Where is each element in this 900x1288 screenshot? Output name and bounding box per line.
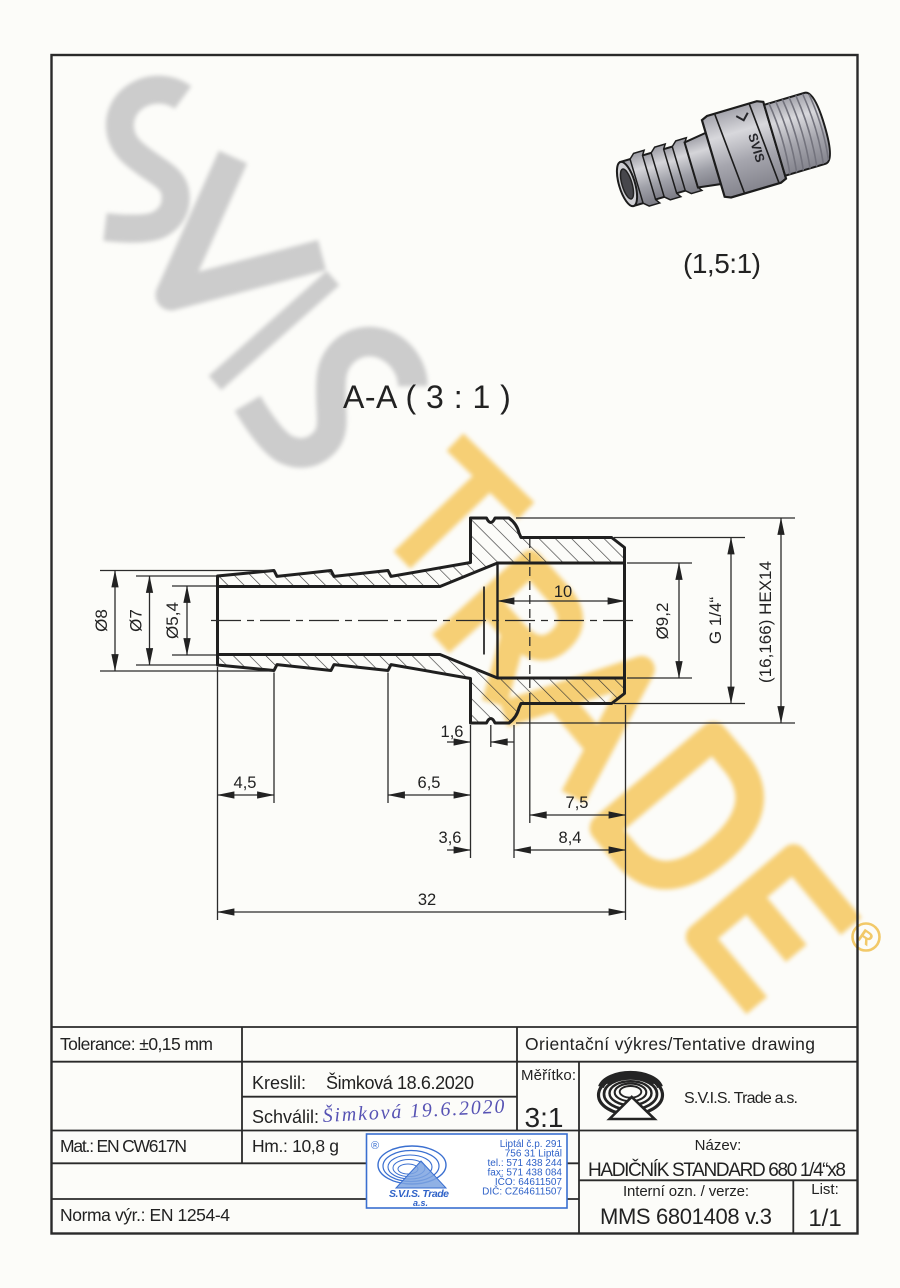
svg-text:7,5: 7,5 — [566, 794, 589, 812]
svg-text:G 1/4“: G 1/4“ — [706, 597, 725, 645]
svg-text:Tolerance: ±0,15 mm: Tolerance: ±0,15 mm — [60, 1034, 213, 1054]
svg-text:DIČ: CZ64611507: DIČ: CZ64611507 — [482, 1185, 562, 1198]
svg-text:Ø8: Ø8 — [92, 609, 111, 632]
svg-text:Ø7: Ø7 — [127, 609, 146, 632]
svg-text:Měřítko:: Měřítko: — [521, 1067, 576, 1084]
svg-text:Šimková 19.6.2020: Šimková 19.6.2020 — [322, 1094, 505, 1127]
svg-text:3:1: 3:1 — [525, 1102, 564, 1133]
svg-text:Interní ozn. / verze:: Interní ozn. / verze: — [623, 1183, 749, 1200]
svg-text:6,5: 6,5 — [418, 774, 441, 792]
svg-text:MMS 6801408 v.3: MMS 6801408 v.3 — [600, 1204, 772, 1229]
svg-text:Ø9,2: Ø9,2 — [653, 603, 672, 640]
svg-text:Hm.: 10,8 g: Hm.: 10,8 g — [252, 1136, 339, 1156]
svg-text:Mat.: EN CW617N: Mat.: EN CW617N — [60, 1136, 187, 1156]
svg-text:Šimková 18.6.2020: Šimková 18.6.2020 — [326, 1072, 474, 1093]
svg-text:Ø5,4: Ø5,4 — [163, 602, 182, 639]
svg-text:4,5: 4,5 — [234, 774, 257, 792]
svg-text:®: ® — [371, 1140, 379, 1152]
svg-text:List:: List: — [811, 1181, 839, 1198]
svg-text:1/1: 1/1 — [808, 1205, 841, 1232]
svg-text:Schválil:: Schválil: — [252, 1107, 319, 1127]
svg-text:(1,5:1): (1,5:1) — [683, 248, 761, 279]
svg-text:10: 10 — [554, 583, 572, 601]
svg-text:A-A ( 3 : 1 ): A-A ( 3 : 1 ) — [343, 379, 511, 415]
svg-text:32: 32 — [418, 891, 436, 909]
svg-text:Kreslil:: Kreslil: — [252, 1073, 306, 1093]
svg-text:Norma výr.: EN 1254-4: Norma výr.: EN 1254-4 — [60, 1205, 230, 1225]
svg-text:HADIČNÍK STANDARD 680 1/4“x8: HADIČNÍK STANDARD 680 1/4“x8 — [588, 1159, 846, 1181]
svg-text:3,6: 3,6 — [439, 829, 462, 847]
svg-text:Orientační výkres/Tentative dr: Orientační výkres/Tentative drawing — [525, 1034, 815, 1054]
svg-text:Název:: Název: — [695, 1137, 742, 1154]
svg-text:S.V.I.S. Trade a.s.: S.V.I.S. Trade a.s. — [684, 1090, 798, 1107]
svg-text:1,6: 1,6 — [441, 723, 464, 741]
svg-text:a.s.: a.s. — [413, 1198, 428, 1208]
svg-text:(16,166) HEX14: (16,166) HEX14 — [756, 561, 775, 683]
svg-text:8,4: 8,4 — [559, 829, 582, 847]
